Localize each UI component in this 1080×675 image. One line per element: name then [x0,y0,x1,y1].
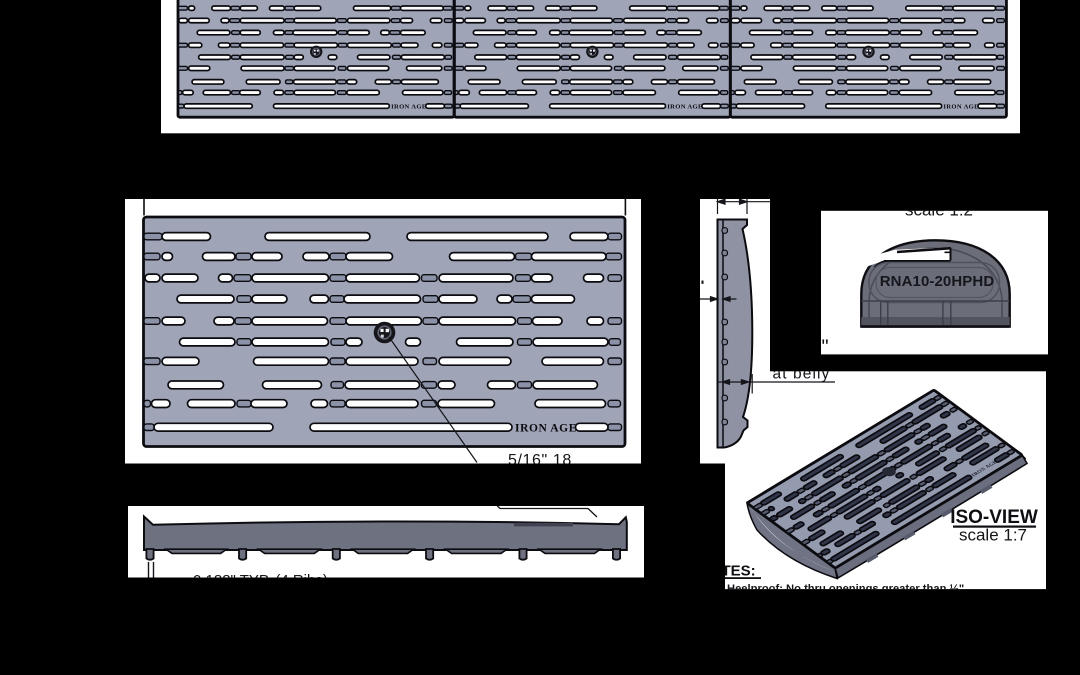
svg-text:RNA10-20HPHD: RNA10-20HPHD [880,273,995,290]
svg-text:scale 1:7: scale 1:7 [959,526,1027,545]
